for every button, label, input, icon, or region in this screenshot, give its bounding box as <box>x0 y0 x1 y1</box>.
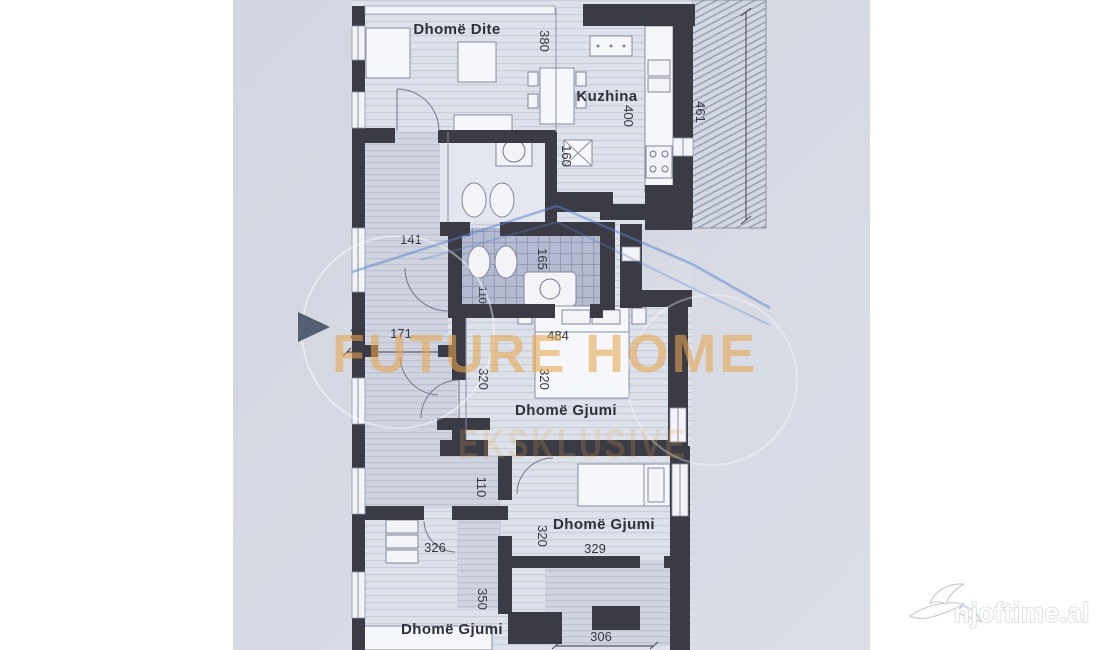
bedroom-bottom-label: Dhomë Gjumi <box>401 621 503 638</box>
dim-shower-length: 165 <box>535 248 550 270</box>
dim-bedroom-bottom-width: 326 <box>424 540 446 555</box>
site-watermark-text: njoftime.al <box>954 597 1090 628</box>
dim-balcony-length: 461 <box>693 101 708 123</box>
dim-bedroom-right-width: 329 <box>584 541 606 556</box>
listing-photo-canvas: Dhomë Dite Kuzhina Dhomë Gjumi Dhomë Gju… <box>0 0 1100 650</box>
dim-bath-width: 160 <box>559 145 574 167</box>
dim-corridor-width: 110 <box>474 477 489 498</box>
living-room-label: Dhomë Dite <box>413 21 500 38</box>
dim-hall-length: 141 <box>400 232 422 247</box>
plan-notch <box>643 224 692 288</box>
brand-watermark-subtext: EKSKLUSIVE <box>458 420 688 467</box>
floorplan-image: Dhomë Dite Kuzhina Dhomë Gjumi Dhomë Gju… <box>0 0 1100 650</box>
bedroom-mid-label: Dhomë Gjumi <box>515 402 617 419</box>
dim-terrace-width: 306 <box>590 629 612 644</box>
kitchen-label: Kuzhina <box>576 88 637 105</box>
dim-bedroom-bottom-length: 350 <box>475 588 490 610</box>
dim-living-width: 380 <box>537 30 552 52</box>
site-watermark: njoftime.al <box>910 584 1090 628</box>
bedroom-right-label: Dhomë Gjumi <box>553 516 655 533</box>
brand-watermark-text: FUTURE HOME <box>332 324 758 384</box>
dim-kitchen-width: 400 <box>621 105 636 127</box>
bedroom-right-furniture <box>578 464 670 506</box>
dim-bedroom-right-length: 320 <box>535 525 550 547</box>
